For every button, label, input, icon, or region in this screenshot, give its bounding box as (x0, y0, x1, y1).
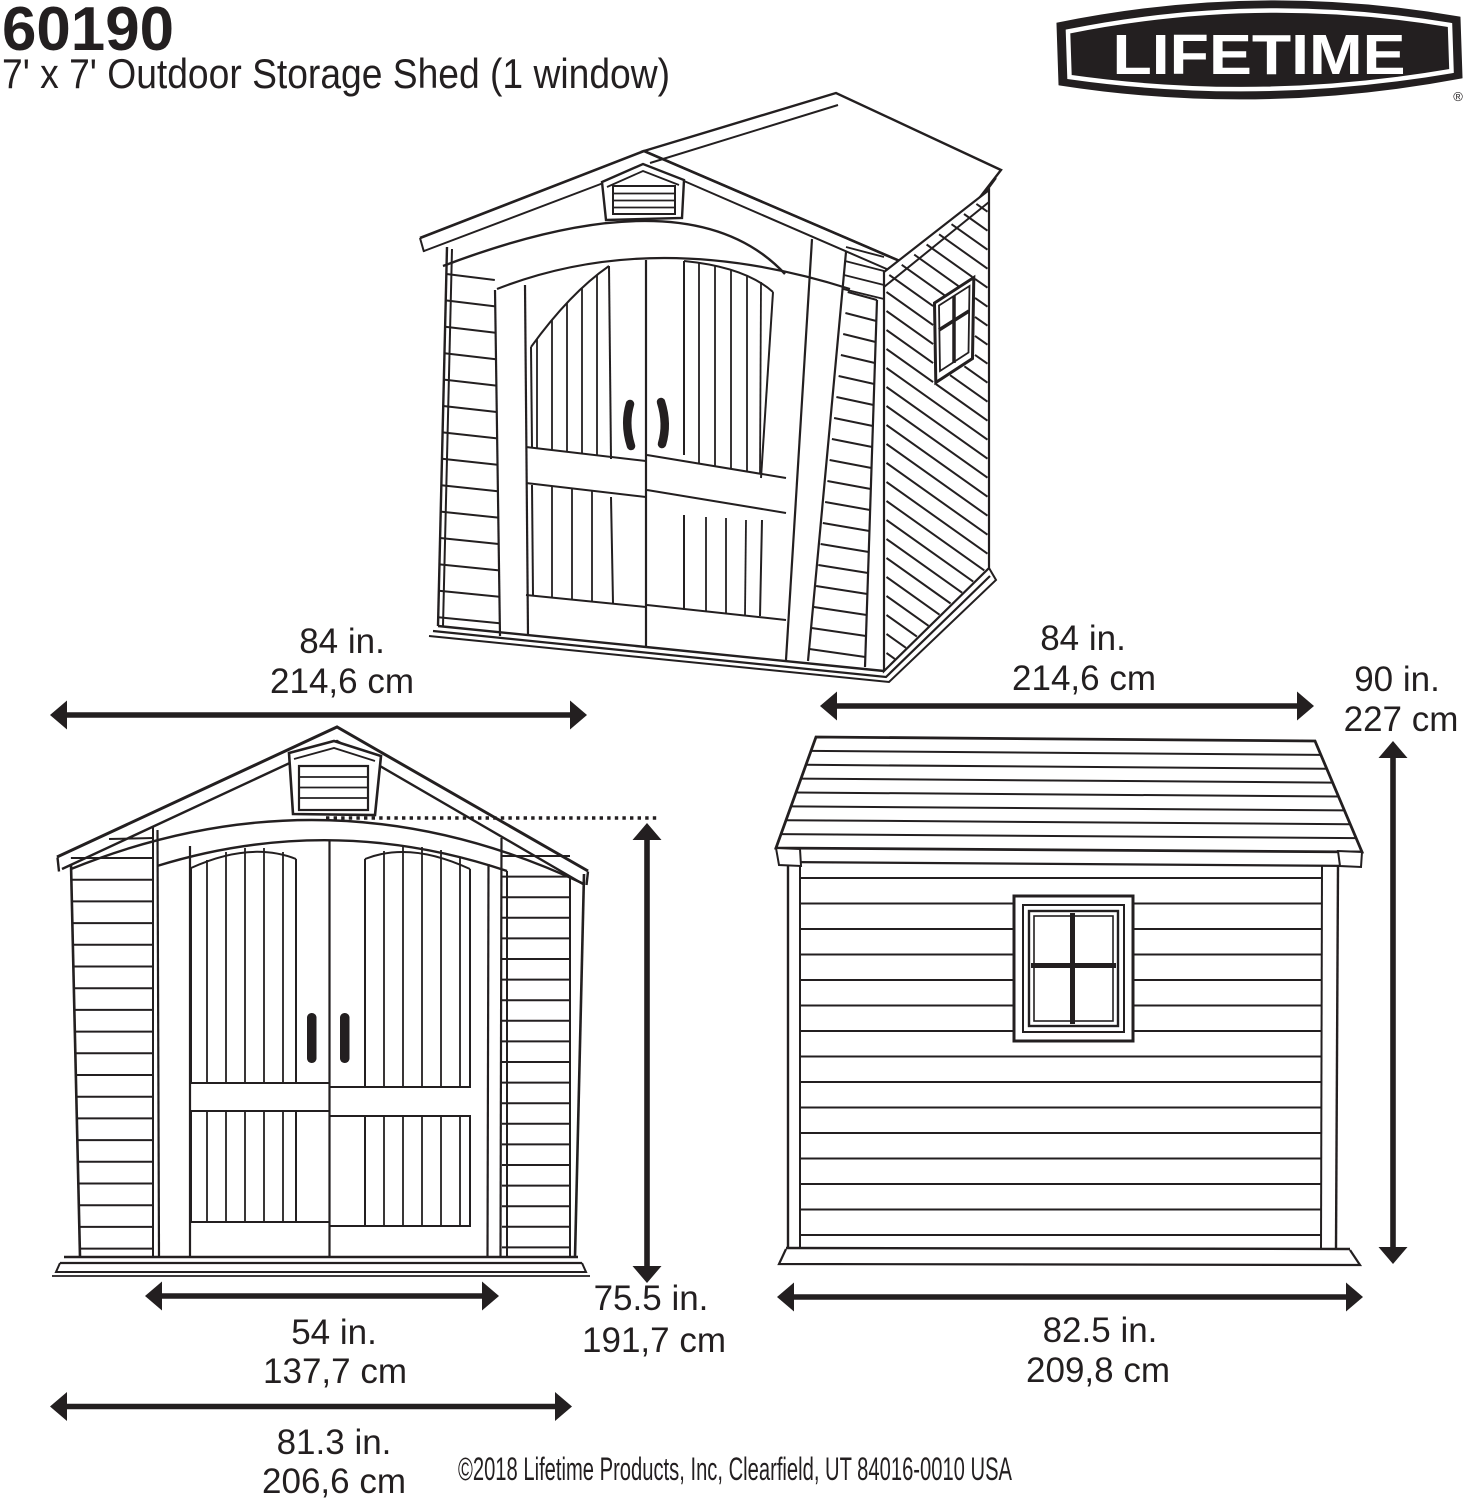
svg-text:137,7 cm: 137,7 cm (263, 1352, 407, 1391)
svg-text:54 in.: 54 in. (291, 1313, 377, 1352)
svg-text:209,8 cm: 209,8 cm (1026, 1351, 1170, 1390)
svg-text:191,7 cm: 191,7 cm (582, 1321, 726, 1360)
svg-text:206,6 cm: 206,6 cm (262, 1462, 406, 1500)
svg-text:84 in.: 84 in. (1040, 619, 1126, 658)
svg-text:82.5 in.: 82.5 in. (1043, 1311, 1158, 1350)
svg-text:81.3 in.: 81.3 in. (277, 1423, 392, 1462)
svg-text:7' x 7' Outdoor Storage Shed (: 7' x 7' Outdoor Storage Shed (1 window) (2, 50, 670, 97)
svg-text:214,6 cm: 214,6 cm (270, 662, 414, 701)
svg-text:®: ® (1453, 89, 1463, 104)
svg-text:©2018 Lifetime Products, Inc,: ©2018 Lifetime Products, Inc, Clearfield… (458, 1451, 1012, 1487)
svg-text:214,6 cm: 214,6 cm (1012, 659, 1156, 698)
svg-text:227 cm: 227 cm (1344, 700, 1459, 739)
svg-text:LIFETIME: LIFETIME (1113, 23, 1406, 87)
svg-text:84 in.: 84 in. (299, 622, 385, 661)
svg-text:90 in.: 90 in. (1354, 660, 1440, 699)
svg-text:75.5 in.: 75.5 in. (594, 1279, 709, 1318)
